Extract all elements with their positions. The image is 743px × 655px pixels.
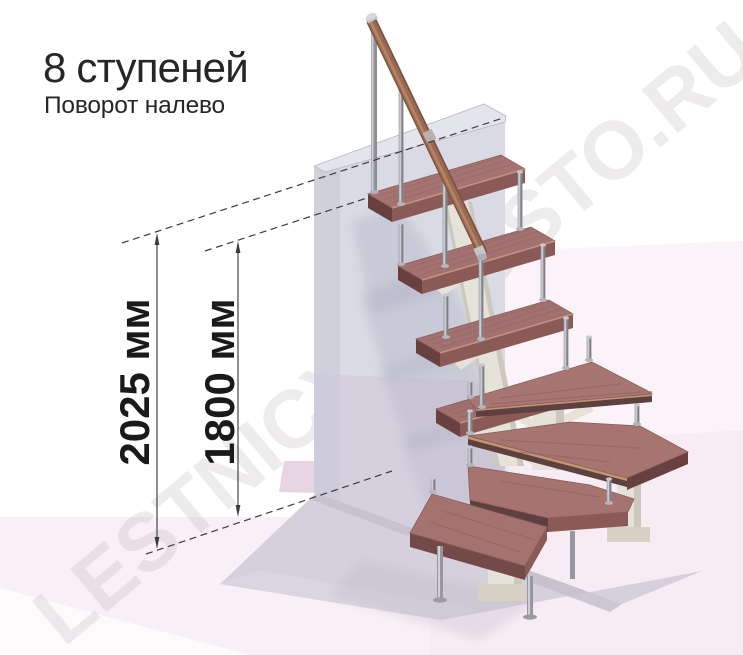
- svg-text:Поворот налево: Поворот налево: [44, 92, 225, 119]
- svg-text:1800 мм: 1800 мм: [196, 298, 243, 465]
- svg-text:2025 мм: 2025 мм: [111, 298, 158, 465]
- svg-text:8 ступеней: 8 ступеней: [43, 44, 248, 91]
